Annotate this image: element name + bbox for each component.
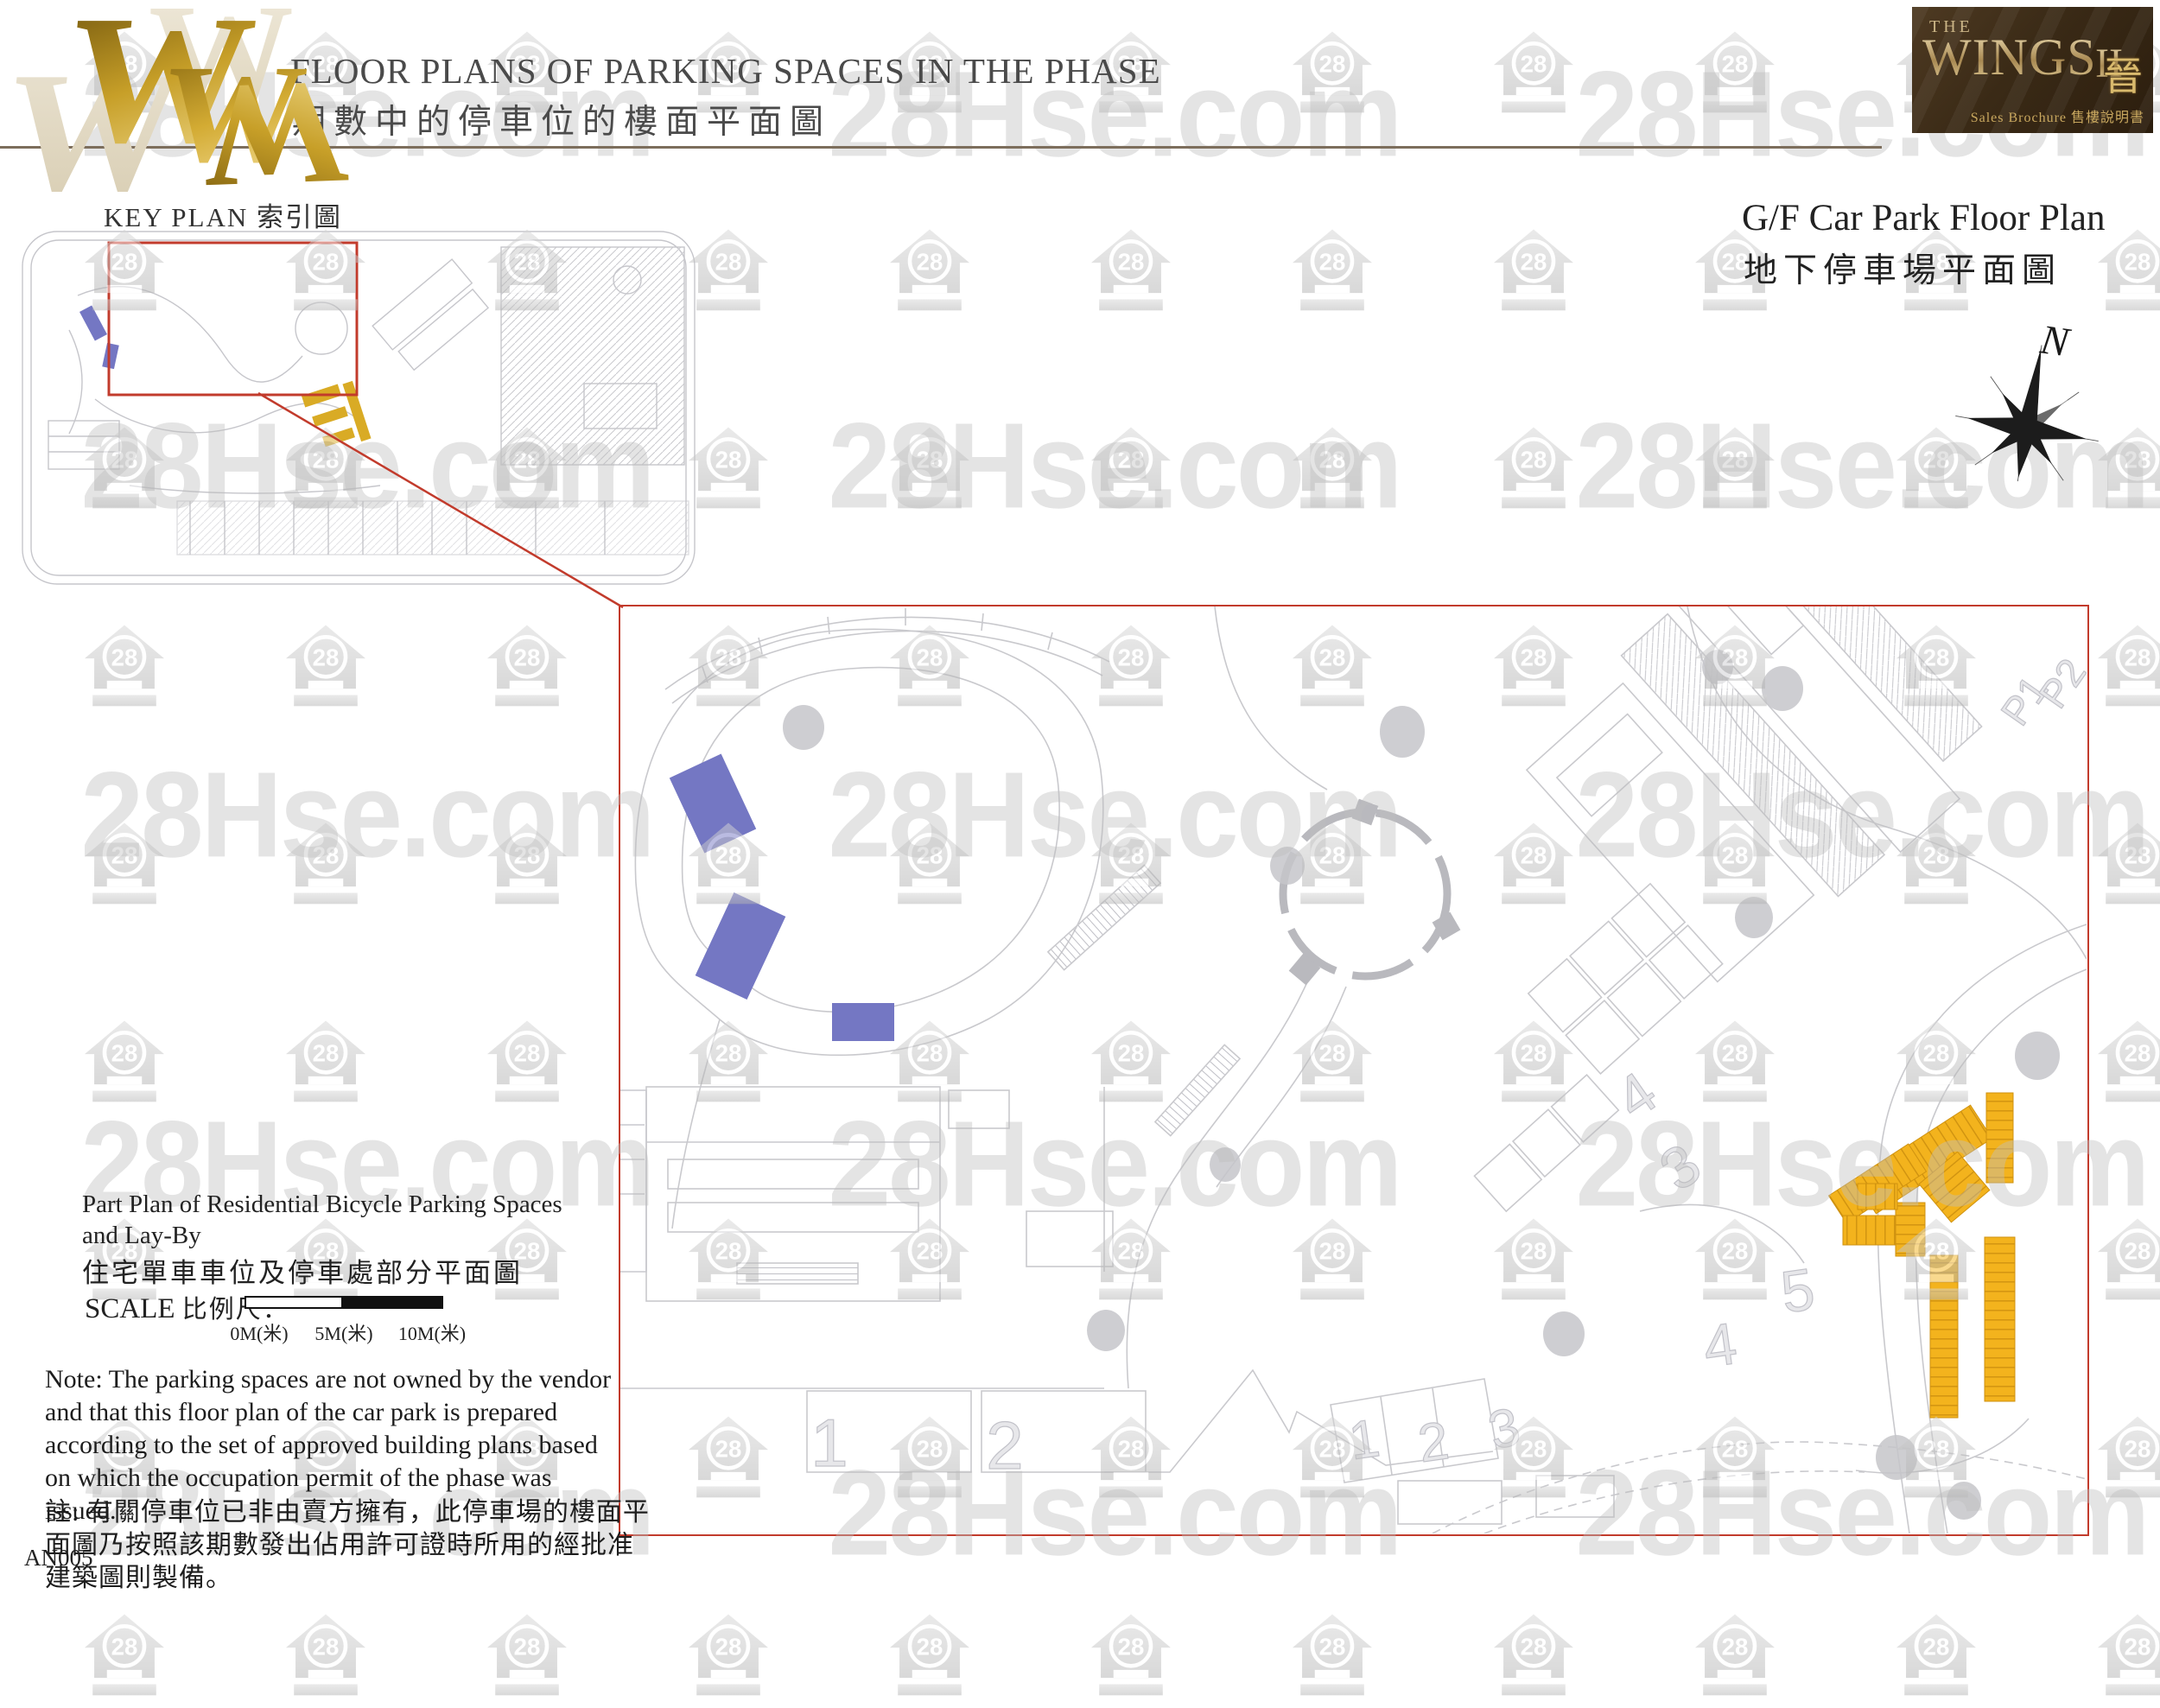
watermark-house-icon: 28 bbox=[689, 1614, 768, 1704]
svg-text:28: 28 bbox=[1118, 446, 1145, 473]
svg-text:28: 28 bbox=[2125, 841, 2151, 868]
watermark-house-icon: 28 bbox=[689, 229, 768, 319]
note-chinese: 註: 有關停車位已非由賣方擁有，此停車場的樓面平面圖乃按照該期數發出佔用許可證時… bbox=[45, 1496, 650, 1595]
svg-text:28: 28 bbox=[1923, 1633, 1950, 1660]
svg-text:28: 28 bbox=[2125, 446, 2151, 473]
svg-text:28: 28 bbox=[1319, 248, 1346, 275]
plan-zone-number: 2 bbox=[1414, 1411, 1452, 1474]
watermark-house-icon: 28 bbox=[1293, 229, 1372, 319]
svg-text:28: 28 bbox=[2125, 644, 2151, 670]
watermark-house-icon: 28 bbox=[85, 822, 164, 912]
watermark-house-icon: 28 bbox=[85, 1614, 164, 1704]
watermark-house-icon: 28 bbox=[1494, 31, 1573, 121]
watermark-house-icon: 28 bbox=[1494, 427, 1573, 517]
svg-text:28: 28 bbox=[1521, 446, 1547, 473]
svg-text:28: 28 bbox=[1118, 1633, 1145, 1660]
svg-text:28: 28 bbox=[111, 1039, 138, 1066]
watermark-house-icon: 28 bbox=[2098, 427, 2160, 517]
watermark-house-icon: 28 bbox=[1695, 31, 1775, 121]
watermark-house-icon: 28 bbox=[1091, 427, 1171, 517]
watermark-house-icon: 28 bbox=[487, 625, 567, 714]
brand-wings: WINGS bbox=[1922, 28, 2097, 87]
scale-bar-black-half bbox=[341, 1296, 442, 1309]
page-title-zh: 期數中的停車位的樓面平面圖 bbox=[292, 95, 831, 143]
watermark-house-icon: 28 bbox=[1494, 1614, 1573, 1704]
wings-gold-logo: W W W W W bbox=[19, 0, 313, 211]
plan-zone-number: 5 bbox=[1777, 1256, 1819, 1326]
plan-zone-number: 4 bbox=[1604, 1059, 1669, 1132]
svg-text:28: 28 bbox=[313, 841, 340, 868]
key-plan-highlight-rect bbox=[109, 243, 357, 395]
watermark-house-icon: 28 bbox=[689, 427, 768, 517]
watermark-house-icon: 28 bbox=[286, 1614, 365, 1704]
watermark-house-icon: 28 bbox=[85, 625, 164, 714]
svg-text:28: 28 bbox=[917, 446, 943, 473]
watermark-house-icon: 28 bbox=[1293, 427, 1372, 517]
svg-text:28: 28 bbox=[715, 446, 742, 473]
svg-text:28: 28 bbox=[111, 1633, 138, 1660]
plan-linework bbox=[620, 606, 2087, 1533]
watermark-house-icon: 28 bbox=[1695, 427, 1775, 517]
watermark-house-icon: 28 bbox=[2098, 1614, 2160, 1704]
plan-zone-number: 4 bbox=[1699, 1311, 1741, 1381]
brand-seal-character: 晉 bbox=[2103, 45, 2143, 102]
svg-text:28: 28 bbox=[514, 841, 541, 868]
compass-north-label: N bbox=[2036, 318, 2074, 366]
plan-zone-number: 1 bbox=[1345, 1408, 1383, 1471]
compass-north-icon: N bbox=[1942, 318, 2106, 499]
scale-tick-10m: 10M(米) bbox=[398, 1318, 466, 1346]
svg-text:28: 28 bbox=[111, 644, 138, 670]
plan-zone-number: 2 bbox=[986, 1407, 1023, 1483]
scale-bar bbox=[245, 1296, 443, 1309]
svg-text:28: 28 bbox=[1521, 50, 1547, 77]
plan-zone-number: 3 bbox=[1649, 1131, 1713, 1203]
svg-text:28: 28 bbox=[313, 644, 340, 670]
watermark-house-icon: 28 bbox=[2098, 1218, 2160, 1308]
watermark-text: 28Hse.com bbox=[81, 746, 653, 886]
watermark-house-icon: 28 bbox=[286, 822, 365, 912]
watermark-house-icon: 28 bbox=[2098, 822, 2160, 912]
watermark-house-icon: 28 bbox=[2098, 229, 2160, 319]
svg-text:28: 28 bbox=[715, 1633, 742, 1660]
watermark-house-icon: 28 bbox=[1091, 229, 1171, 319]
watermark-house-icon: 28 bbox=[85, 1020, 164, 1110]
floor-plan-title-en: G/F Car Park Floor Plan bbox=[1742, 197, 2105, 239]
watermark-house-icon: 28 bbox=[1091, 1614, 1171, 1704]
svg-text:28: 28 bbox=[514, 1633, 541, 1660]
scale-tick-5m: 5M(米) bbox=[314, 1318, 372, 1346]
brand-tagline: Sales Brochure 售樓說明書 bbox=[1971, 105, 2144, 126]
logo-w-glyph: W bbox=[200, 60, 352, 212]
watermark-house-icon: 28 bbox=[1695, 1614, 1775, 1704]
watermark-house-icon: 28 bbox=[1293, 1614, 1372, 1704]
svg-text:28: 28 bbox=[1722, 446, 1749, 473]
watermark-house-icon: 28 bbox=[890, 229, 969, 319]
svg-text:28: 28 bbox=[1722, 1633, 1749, 1660]
svg-text:28: 28 bbox=[715, 248, 742, 275]
page-code: AN005 bbox=[24, 1545, 93, 1571]
svg-text:28: 28 bbox=[1521, 248, 1547, 275]
plan-zone-numbers: 121234354P1P2 bbox=[810, 651, 2087, 1483]
parking-spaces-yellow bbox=[1829, 1093, 2015, 1418]
watermark-house-icon: 28 bbox=[487, 1614, 567, 1704]
svg-text:28: 28 bbox=[313, 1633, 340, 1660]
svg-text:28: 28 bbox=[1722, 50, 1749, 77]
svg-text:28: 28 bbox=[2125, 1237, 2151, 1264]
scale-tick-0m: 0M(米) bbox=[230, 1318, 288, 1346]
svg-text:28: 28 bbox=[1118, 248, 1145, 275]
svg-text:28: 28 bbox=[2125, 1435, 2151, 1462]
svg-text:28: 28 bbox=[514, 1039, 541, 1066]
key-plan-leader-line bbox=[251, 387, 631, 613]
svg-text:28: 28 bbox=[917, 1633, 943, 1660]
svg-text:28: 28 bbox=[514, 644, 541, 670]
svg-text:28: 28 bbox=[2125, 1039, 2151, 1066]
svg-text:28: 28 bbox=[111, 841, 138, 868]
sales-brochure-brand-box: THE WINGS II 晉 Sales Brochure 售樓說明書 bbox=[1912, 7, 2153, 133]
svg-text:28: 28 bbox=[1319, 50, 1346, 77]
watermark-house-icon: 28 bbox=[2098, 1020, 2160, 1110]
plan-zone-number: 1 bbox=[810, 1405, 848, 1481]
watermark-house-icon: 28 bbox=[2098, 1416, 2160, 1506]
watermark-house-icon: 28 bbox=[2098, 625, 2160, 714]
watermark-house-icon: 28 bbox=[286, 1020, 365, 1110]
svg-text:28: 28 bbox=[1319, 446, 1346, 473]
watermark-house-icon: 28 bbox=[890, 1614, 969, 1704]
watermark-house-icon: 28 bbox=[1896, 1614, 1976, 1704]
svg-text:28: 28 bbox=[1521, 1633, 1547, 1660]
svg-text:28: 28 bbox=[2125, 248, 2151, 275]
svg-text:28: 28 bbox=[2125, 1633, 2151, 1660]
part-plan-caption-line1: Part Plan of Residential Bicycle Parking… bbox=[82, 1191, 562, 1219]
svg-text:28: 28 bbox=[1319, 1633, 1346, 1660]
central-ring bbox=[1283, 799, 1460, 986]
watermark-house-icon: 28 bbox=[286, 625, 365, 714]
page-title-en: FLOOR PLANS OF PARKING SPACES IN THE PHA… bbox=[290, 50, 1161, 92]
svg-text:28: 28 bbox=[917, 248, 943, 275]
part-plan-caption-line2: and Lay-By bbox=[82, 1222, 201, 1250]
watermark-house-icon: 28 bbox=[890, 427, 969, 517]
parking-spaces-purple bbox=[670, 754, 894, 1041]
watermark-house-icon: 28 bbox=[1494, 229, 1573, 319]
floor-plan-title-zh: 地下停車場平面圖 bbox=[1744, 244, 2062, 292]
watermark-house-icon: 28 bbox=[487, 822, 567, 912]
part-plan-caption-zh: 住宅單車車位及停車處部分平面圖 bbox=[82, 1251, 523, 1290]
watermark-house-icon: 28 bbox=[487, 1020, 567, 1110]
main-floor-plan: 121234354P1P2 bbox=[619, 605, 2089, 1536]
watermark-house-icon: 28 bbox=[1293, 31, 1372, 121]
watermark-text: 28Hse.com bbox=[829, 397, 1401, 537]
svg-text:28: 28 bbox=[313, 1039, 340, 1066]
